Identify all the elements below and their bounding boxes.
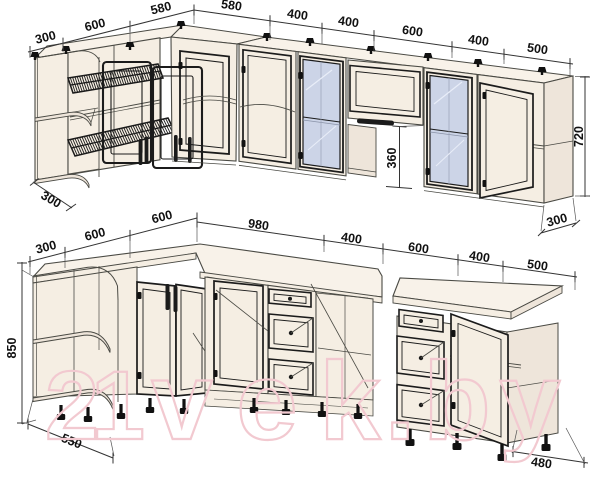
svg-text:400: 400 — [337, 14, 360, 31]
svg-text:k: k — [319, 340, 381, 463]
svg-text:1: 1 — [91, 351, 145, 460]
svg-text:400: 400 — [286, 6, 309, 23]
svg-text:b: b — [423, 340, 490, 463]
svg-text:360: 360 — [385, 148, 399, 169]
svg-text:500: 500 — [526, 257, 549, 274]
svg-text:720: 720 — [572, 126, 586, 147]
svg-text:400: 400 — [467, 32, 490, 49]
svg-text:850: 850 — [5, 338, 19, 359]
svg-text:600: 600 — [401, 23, 424, 40]
svg-text:.: . — [385, 340, 416, 463]
svg-text:v: v — [151, 340, 212, 463]
svg-text:980: 980 — [247, 216, 270, 233]
svg-text:600: 600 — [407, 240, 430, 257]
svg-text:y: y — [499, 340, 560, 463]
svg-text:500: 500 — [526, 41, 549, 58]
svg-text:400: 400 — [340, 230, 363, 247]
svg-text:400: 400 — [468, 248, 491, 265]
svg-text:e: e — [236, 340, 297, 463]
